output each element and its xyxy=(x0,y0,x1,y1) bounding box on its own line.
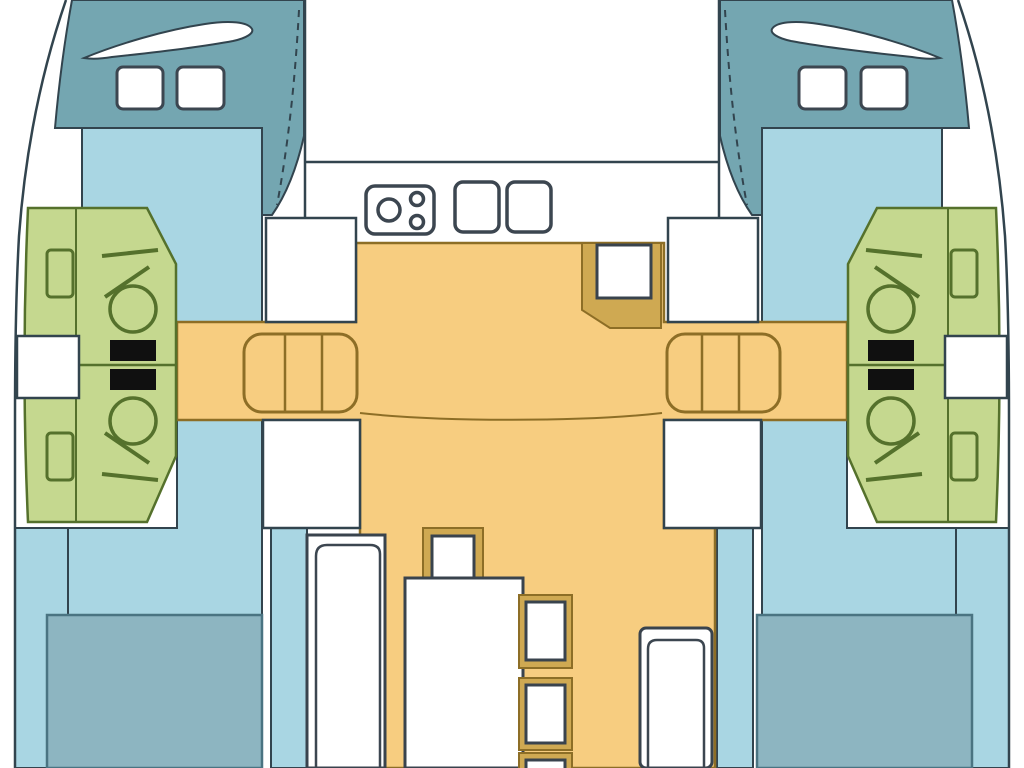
galley-sink-icon-2 xyxy=(507,182,551,232)
deck-hatch-icon xyxy=(799,67,846,109)
stool-icon xyxy=(526,760,565,768)
deck-hatch-icon xyxy=(117,67,163,109)
toilet-tank xyxy=(110,369,156,390)
aft-passage-port xyxy=(271,528,307,768)
catamaran-deck-plan xyxy=(0,0,1024,768)
bathroom-starboard xyxy=(848,208,1007,522)
stool-column xyxy=(519,595,572,768)
bathroom-door xyxy=(945,336,1007,398)
stool-icon xyxy=(526,602,565,660)
bathroom-door xyxy=(17,336,79,398)
table-icon xyxy=(405,578,523,768)
cabinet-starboard xyxy=(668,218,758,322)
toilet-tank xyxy=(110,340,156,361)
toilet-tank xyxy=(868,369,914,390)
settee-starboard xyxy=(667,334,780,412)
settee-port xyxy=(244,334,357,412)
nav-seat xyxy=(597,245,651,298)
companionway-port xyxy=(263,420,360,528)
companionway-starboard xyxy=(664,420,761,528)
deck-plan-page xyxy=(0,0,1024,768)
berth-starboard xyxy=(757,615,972,768)
berth-port xyxy=(47,615,262,768)
settee-starboard-outline xyxy=(667,334,780,412)
settee-port-outline xyxy=(244,334,357,412)
stool-icon xyxy=(526,685,565,743)
bathroom-port xyxy=(17,208,176,522)
bench-port xyxy=(307,535,385,768)
deck-hatch-icon xyxy=(177,67,224,109)
galley-sink-icon-1 xyxy=(455,182,499,232)
deck-hatch-icon xyxy=(861,67,907,109)
stove-icon xyxy=(366,186,434,234)
cabinet-port xyxy=(266,218,356,322)
toilet-tank xyxy=(868,340,914,361)
stool-icon xyxy=(432,536,474,580)
bench-starboard xyxy=(640,628,712,768)
dinette-seat-top xyxy=(423,528,483,580)
aft-passage-starboard xyxy=(717,528,753,768)
